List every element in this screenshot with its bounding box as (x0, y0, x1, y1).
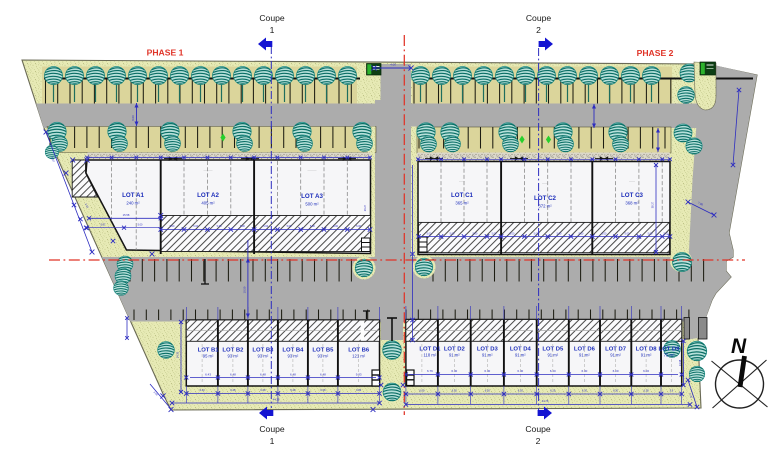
svg-text:6.29: 6.29 (550, 389, 556, 393)
svg-text:10.50: 10.50 (243, 286, 247, 293)
svg-text:1: 1 (270, 25, 275, 35)
svg-text:6.30: 6.30 (485, 389, 491, 393)
svg-text:5.00: 5.00 (450, 232, 455, 235)
svg-text:2: 2 (536, 25, 541, 35)
svg-text:1: 1 (270, 436, 275, 446)
svg-text:5.00: 5.00 (664, 232, 669, 235)
svg-text:38.27: 38.27 (651, 201, 655, 208)
svg-text:2: 2 (536, 436, 541, 446)
svg-text:5.00: 5.00 (602, 232, 607, 235)
svg-text:5.00: 5.00 (579, 232, 584, 235)
svg-text:LOT C1: LOT C1 (451, 192, 474, 199)
svg-text:29.27: 29.27 (363, 204, 367, 211)
svg-text:6.30: 6.30 (613, 389, 619, 393)
svg-text:5.00: 5.00 (625, 232, 630, 235)
svg-text:——: —— (459, 179, 465, 183)
svg-text:6.28: 6.28 (644, 389, 650, 393)
svg-text:500 m²: 500 m² (305, 202, 319, 207)
svg-text:6.48: 6.48 (260, 388, 266, 392)
svg-text:5.00: 5.00 (333, 225, 338, 228)
svg-text:5.00: 5.00 (356, 225, 361, 228)
svg-text:———: ——— (308, 168, 317, 172)
svg-text:——: —— (629, 179, 635, 183)
svg-text:14.35: 14.35 (176, 351, 180, 358)
svg-text:5.00: 5.00 (193, 225, 198, 228)
svg-text:LOT C2: LOT C2 (534, 195, 557, 202)
svg-text:Coupe: Coupe (525, 424, 551, 434)
svg-text:95 m²: 95 m² (203, 354, 214, 359)
svg-text:PHASE 2: PHASE 2 (637, 48, 674, 58)
svg-text:5.00: 5.00 (287, 225, 292, 228)
svg-text:405 m²: 405 m² (201, 201, 215, 206)
svg-text:5.00: 5.00 (510, 232, 515, 235)
svg-text:Coupe: Coupe (259, 13, 285, 23)
svg-text:15.58: 15.58 (123, 213, 130, 217)
svg-text:LOT A1: LOT A1 (122, 192, 144, 199)
svg-text:6.48: 6.48 (290, 388, 296, 392)
svg-text:N: N (731, 335, 747, 358)
svg-text:——: —— (542, 181, 548, 185)
svg-text:Coupe: Coupe (526, 13, 552, 23)
svg-text:6.76: 6.76 (427, 369, 433, 373)
svg-text:5.97: 5.97 (101, 223, 106, 226)
svg-text:368 m²: 368 m² (625, 201, 639, 206)
svg-text:44.76: 44.76 (542, 399, 549, 403)
svg-text:6.30: 6.30 (582, 389, 588, 393)
svg-text:6.48: 6.48 (230, 388, 236, 392)
svg-text:5.00: 5.00 (263, 225, 268, 228)
svg-text:118 m²: 118 m² (424, 353, 437, 358)
svg-text:240 m²: 240 m² (126, 201, 140, 206)
svg-text:5.00: 5.00 (240, 225, 245, 228)
svg-text:5.00: 5.00 (473, 232, 478, 235)
svg-text:———: ——— (204, 168, 213, 172)
svg-text:5.00: 5.00 (170, 225, 175, 228)
svg-text:PHASE 1: PHASE 1 (147, 48, 184, 58)
svg-text:6.30: 6.30 (518, 389, 524, 393)
svg-text:LOT C3: LOT C3 (621, 192, 644, 199)
svg-text:5.00: 5.00 (557, 232, 562, 235)
svg-text:6.43: 6.43 (200, 388, 206, 392)
svg-text:365 m²: 365 m² (455, 201, 469, 206)
svg-text:75 m²: 75 m² (664, 353, 675, 358)
svg-text:9.83: 9.83 (356, 388, 362, 392)
svg-text:44.38: 44.38 (273, 398, 280, 402)
svg-text:5.00: 5.00 (534, 232, 539, 235)
svg-text:6.09: 6.09 (419, 389, 425, 393)
svg-text:5.00: 5.00 (217, 225, 222, 228)
svg-text:372 m²: 372 m² (538, 204, 552, 209)
svg-text:Coupe: Coupe (259, 424, 285, 434)
svg-text:4.06: 4.06 (390, 63, 396, 67)
svg-text:5.00: 5.00 (427, 232, 432, 235)
svg-text:5.00: 5.00 (492, 232, 497, 235)
svg-text:LOT A2: LOT A2 (197, 192, 219, 199)
svg-text:6.00: 6.00 (131, 115, 135, 121)
svg-text:3.9: 3.9 (670, 389, 674, 393)
svg-text:14.38: 14.38 (678, 359, 682, 366)
svg-text:LOT A3: LOT A3 (301, 193, 323, 200)
svg-text:5.00: 5.00 (138, 223, 143, 226)
svg-text:5.00: 5.00 (310, 225, 315, 228)
svg-text:6.30: 6.30 (452, 389, 458, 393)
svg-text:6.43: 6.43 (205, 372, 211, 376)
svg-text:5.00: 5.00 (648, 232, 653, 235)
svg-text:6.48: 6.48 (320, 388, 326, 392)
